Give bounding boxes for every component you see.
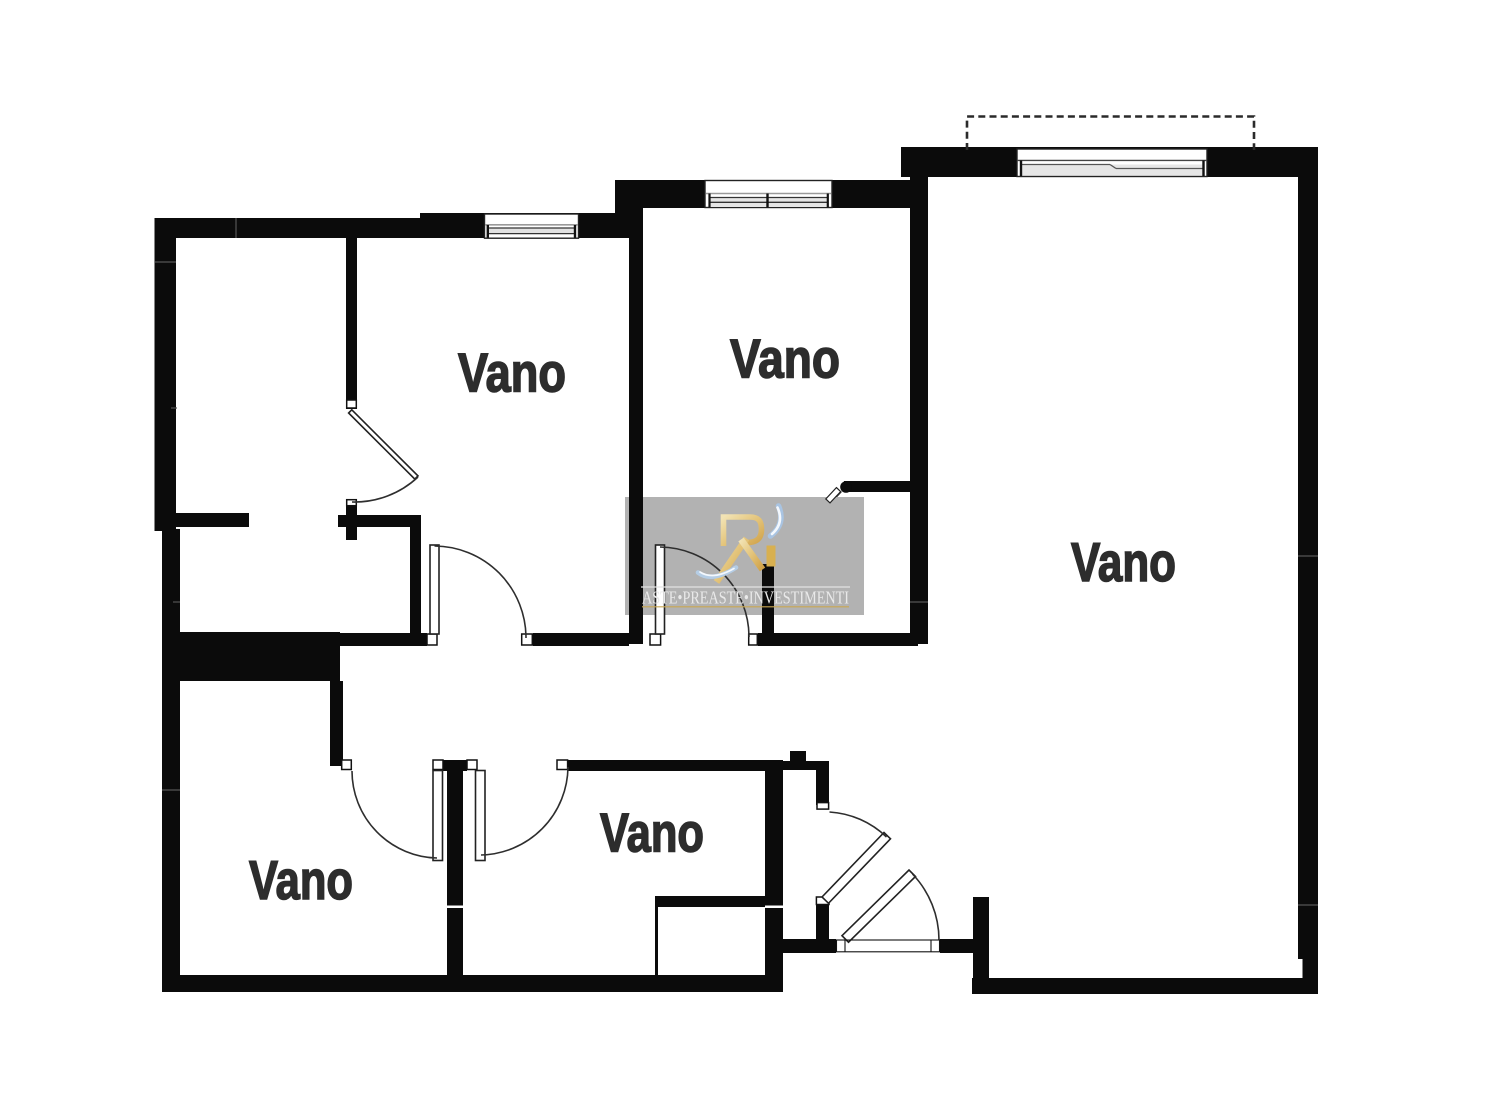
svg-text:Vano: Vano — [730, 328, 840, 390]
svg-text:Vano: Vano — [1071, 531, 1176, 593]
svg-text:Vano: Vano — [249, 849, 353, 911]
svg-text:ASTE•PREASTE•INVESTIMENTI: ASTE•PREASTE•INVESTIMENTI — [642, 588, 849, 608]
svg-text:Vano: Vano — [458, 342, 566, 404]
svg-text:Vano: Vano — [600, 802, 704, 864]
